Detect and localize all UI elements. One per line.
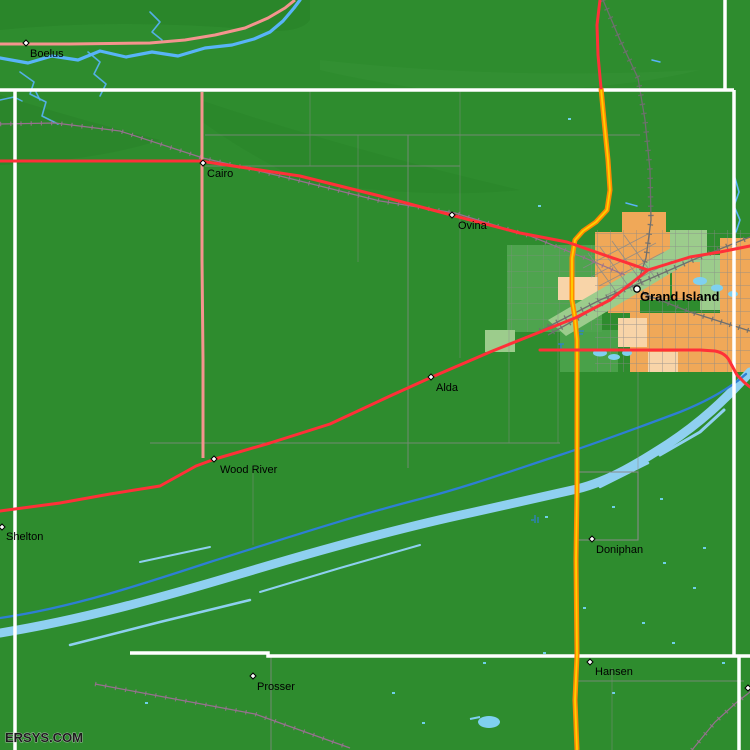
town-label-prosser: Prosser — [257, 681, 295, 693]
lake — [693, 277, 707, 285]
ersys-watermark: ERSYS.COM — [5, 730, 83, 745]
town-label-doniphan: Doniphan — [596, 544, 643, 556]
town-label-alda: Alda — [436, 382, 459, 394]
town-label-boelus: Boelus — [30, 48, 64, 60]
urban-block-north — [622, 212, 666, 232]
lake — [608, 354, 620, 360]
map-canvas: Boelus Cairo Ovina Grand Island Alda Woo… — [0, 0, 750, 750]
town-label-hansen: Hansen — [595, 666, 633, 678]
pond-south — [478, 716, 500, 728]
town-label-grand-island: Grand Island — [640, 289, 720, 304]
town-label-cairo: Cairo — [207, 168, 233, 180]
town-label-wood-river: Wood River — [220, 464, 278, 476]
state-road-cairo-south — [202, 92, 203, 458]
town-label-shelton: Shelton — [6, 531, 43, 543]
town-label-ovina: Ovina — [458, 220, 488, 232]
